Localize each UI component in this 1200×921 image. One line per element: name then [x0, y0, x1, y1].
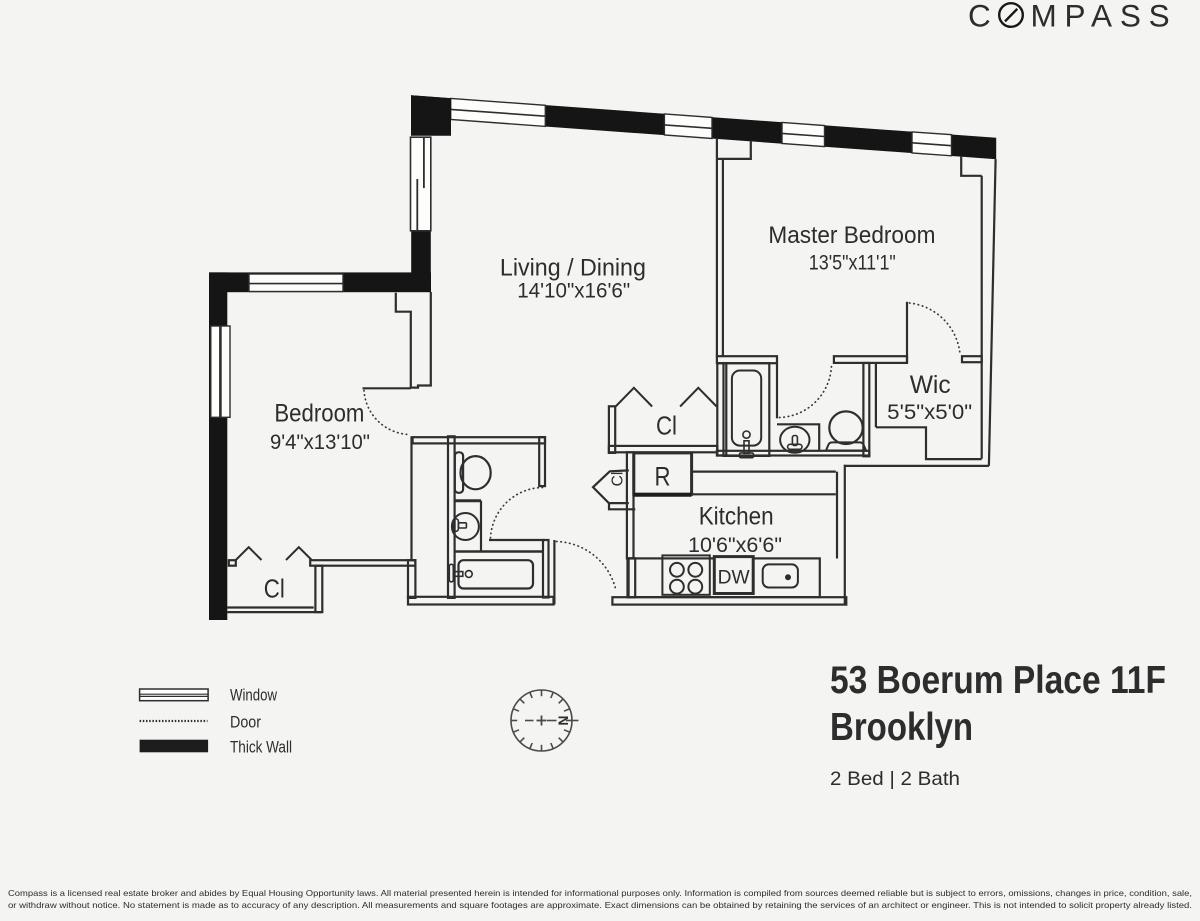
svg-text:MPASS: MPASS — [1031, 0, 1178, 34]
svg-text:Kitchen: Kitchen — [699, 503, 774, 531]
svg-text:10'6"x6'6": 10'6"x6'6" — [688, 533, 782, 557]
svg-text:5'5"x5'0": 5'5"x5'0" — [887, 400, 972, 424]
svg-text:Cl: Cl — [656, 411, 677, 441]
svg-text:Living / Dining: Living / Dining — [500, 255, 646, 282]
svg-text:Cl: Cl — [610, 472, 627, 487]
svg-text:R: R — [655, 462, 671, 492]
svg-text:14'10"x16'6": 14'10"x16'6" — [517, 279, 630, 303]
svg-text:or withdraw without notice. No: or withdraw without notice. No statement… — [8, 900, 1192, 910]
svg-text:9'4"x13'10": 9'4"x13'10" — [270, 430, 370, 454]
svg-text:2 Bed | 2 Bath: 2 Bed | 2 Bath — [830, 768, 960, 790]
svg-text:Cl: Cl — [264, 573, 285, 603]
svg-text:DW: DW — [718, 568, 750, 589]
svg-text:Brooklyn: Brooklyn — [830, 706, 973, 749]
svg-text:Wic: Wic — [910, 371, 951, 399]
svg-text:53 Boerum Place 11F: 53 Boerum Place 11F — [830, 659, 1166, 702]
svg-text:Window: Window — [230, 687, 277, 705]
svg-text:Thick Wall: Thick Wall — [230, 739, 292, 757]
svg-text:Door: Door — [230, 714, 261, 732]
svg-text:Bedroom: Bedroom — [274, 400, 364, 428]
svg-text:13'5"x11'1": 13'5"x11'1" — [809, 251, 896, 275]
svg-text:Master Bedroom: Master Bedroom — [768, 222, 935, 249]
svg-text:N: N — [556, 715, 572, 725]
svg-text:C: C — [968, 0, 991, 34]
svg-text:Compass is a licensed real est: Compass is a licensed real estate broker… — [8, 888, 1192, 898]
